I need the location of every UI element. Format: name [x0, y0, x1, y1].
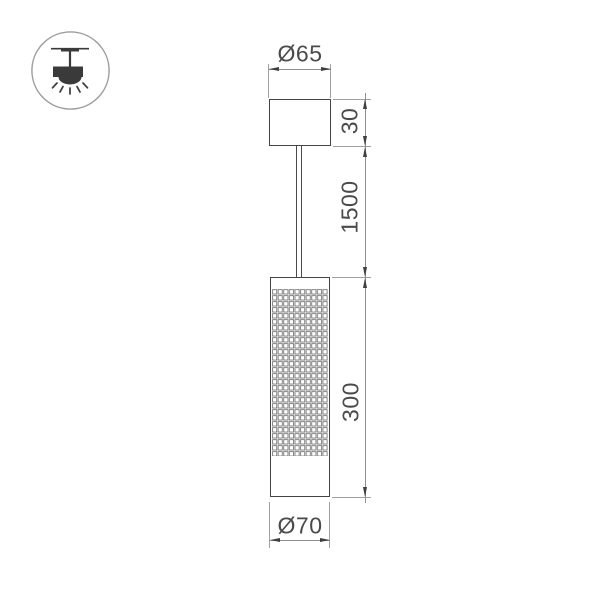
dim-label-canopy-height: 30	[339, 108, 362, 135]
dimension-arrow	[363, 278, 367, 288]
suspension-cable	[296, 146, 302, 277]
extension-line	[332, 497, 371, 498]
dim-label-top-diameter: Ø65	[278, 43, 323, 66]
perforated-mesh-texture	[272, 289, 328, 456]
dimension-arrow	[363, 147, 367, 157]
ceiling-pendant-mount-icon	[30, 30, 110, 110]
dimension-arrow	[270, 538, 280, 542]
dim-label-body-height: 300	[340, 382, 363, 422]
dimension-arrow	[269, 67, 279, 71]
dimension-arrow	[363, 99, 367, 109]
dim-label-suspension-length: 1500	[339, 180, 362, 233]
dimension-arrow	[363, 136, 367, 146]
dimension-arrow	[320, 538, 330, 542]
technical-drawing-canvas: Ø65 30 1500 300 Ø70	[0, 0, 600, 600]
dimension-arrow	[363, 267, 367, 277]
canopy-rect	[269, 99, 331, 146]
dim-label-bottom-diameter: Ø70	[278, 515, 323, 538]
dimension-arrow	[363, 487, 367, 497]
dimension-arrow	[321, 67, 331, 71]
